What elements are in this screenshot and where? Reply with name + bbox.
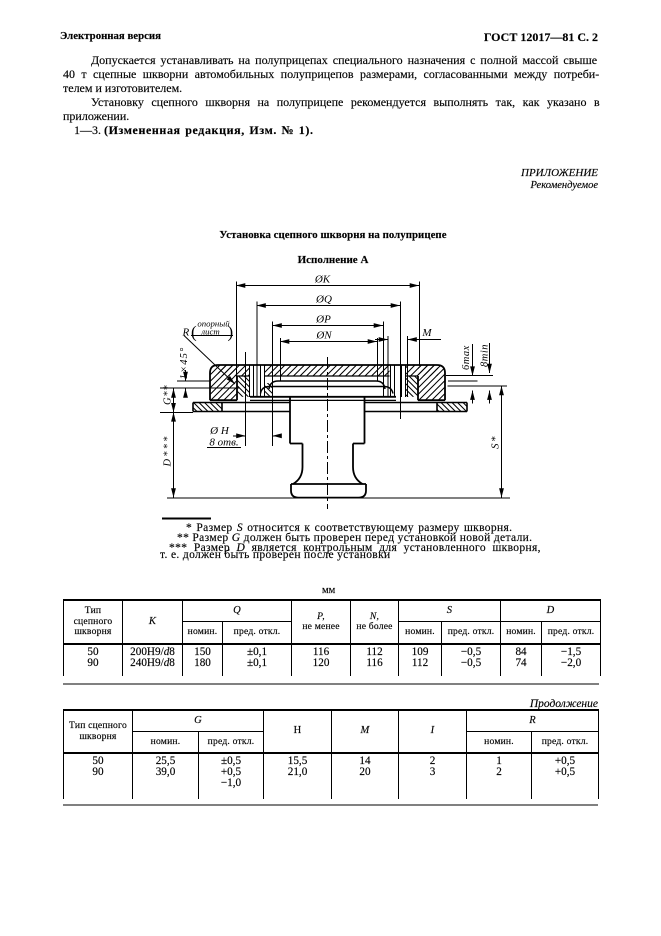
svg-text:ØK: ØK — [314, 274, 331, 286]
svg-text:G**: G** — [163, 385, 174, 405]
svg-text:ØQ: ØQ — [315, 294, 332, 306]
svg-text:M: M — [421, 327, 432, 339]
svg-text:ØN: ØN — [315, 330, 332, 342]
svg-text:1×45°: 1×45° — [179, 346, 190, 379]
svg-text:D***: D*** — [163, 434, 174, 467]
svg-text:Ø Н: Ø Н — [209, 425, 230, 437]
svg-text:): ) — [228, 323, 234, 342]
svg-text:6max: 6max — [461, 345, 472, 370]
svg-text:S*: S* — [490, 435, 502, 449]
svg-text:(: ( — [191, 323, 197, 342]
svg-text:8 отв.: 8 отв. — [209, 437, 238, 449]
svg-text:лист: лист — [200, 327, 220, 337]
svg-text:R: R — [182, 327, 190, 339]
svg-text:ØP: ØP — [315, 314, 331, 326]
svg-text:8min: 8min — [480, 344, 491, 367]
